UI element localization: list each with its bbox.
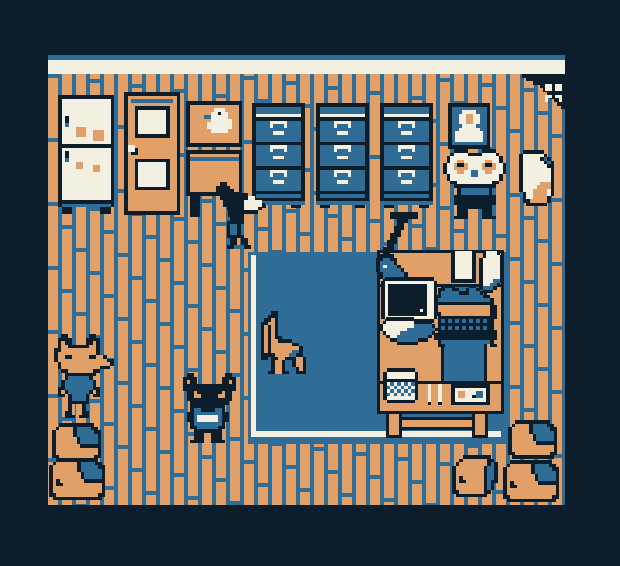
floor-seam: [384, 498, 394, 502]
floor-seam: [356, 452, 366, 456]
fridge-px: [62, 211, 73, 215]
floor-seam: [286, 81, 296, 85]
floor-seam: [342, 237, 352, 241]
floor-seam: [552, 390, 562, 394]
portrait-px: [448, 145, 490, 149]
moth-px: [545, 98, 549, 102]
sniffing-cat-character-px: [244, 245, 251, 249]
floor-seam: [216, 94, 226, 98]
chair-px: [268, 371, 275, 375]
floor-seam: [160, 386, 170, 390]
rabbit-character-px: [454, 216, 468, 220]
floor-seam: [48, 138, 58, 142]
floor-seam: [216, 478, 226, 482]
box-small-right-px: [456, 494, 488, 498]
floor-seam: [160, 322, 170, 326]
floor-seam: [188, 496, 198, 500]
fox-character[interactable]: [54, 334, 114, 418]
floor-gap: [562, 74, 565, 505]
floor-seam: [552, 134, 562, 138]
desk-leg-right-face: [475, 414, 485, 435]
rabbit-character-px: [482, 216, 496, 220]
file-cabinet-3[interactable]: [380, 103, 433, 208]
floor-seam: [188, 304, 198, 308]
fox-character-px: [93, 394, 100, 398]
rabbit-character[interactable]: [443, 149, 506, 219]
floor-seam: [510, 385, 520, 389]
floor-seam: [160, 450, 170, 454]
floor-seam: [524, 216, 534, 220]
floor-seam: [426, 503, 436, 505]
floor-seam: [496, 106, 506, 110]
floor-seam: [454, 229, 464, 233]
mug-px: [387, 400, 415, 404]
floor-seam: [258, 483, 268, 487]
floor-seam: [146, 491, 156, 495]
floor-seam: [286, 465, 296, 469]
floor-seam: [244, 460, 254, 464]
black-cat-character-px: [211, 440, 225, 444]
cassette-px: [451, 402, 490, 406]
chair-px: [261, 357, 268, 361]
floor-seam: [132, 468, 142, 472]
fridge-px: [100, 211, 111, 215]
floor-seam: [132, 276, 142, 280]
floor-seam: [118, 381, 128, 385]
floor-seam: [328, 214, 338, 218]
floor-seam: [48, 74, 58, 78]
box-stack-left-top[interactable]: [52, 423, 105, 462]
typewriter[interactable]: [434, 284, 501, 347]
floor-seam: [412, 96, 422, 100]
chair[interactable]: [257, 311, 310, 374]
floor-seam: [300, 232, 310, 236]
floor-seam: [328, 470, 338, 474]
pencils-px: [428, 402, 432, 406]
floor-seam: [538, 367, 548, 371]
floor-seam: [300, 488, 310, 492]
pencils: [424, 384, 445, 405]
papers-px: [500, 279, 504, 283]
box-stack-right-top[interactable]: [508, 420, 561, 459]
floor-seam: [118, 445, 128, 449]
floor-seam: [62, 289, 72, 293]
paper-bag-px: [547, 199, 551, 203]
fridge[interactable]: [58, 95, 114, 214]
desk-leg-left-face: [389, 414, 399, 435]
floor-seam: [552, 326, 562, 330]
floor-seam: [104, 422, 114, 426]
moth-px: [559, 98, 563, 102]
floor-seam: [510, 129, 520, 133]
floor-seam: [76, 248, 86, 252]
floor-seam: [132, 404, 142, 408]
game-stage[interactable]: [0, 0, 620, 566]
pencils-px: [438, 402, 442, 406]
floor-seam: [552, 262, 562, 266]
sniffing-cat-character-px: [258, 207, 262, 211]
file-cabinet-2-px: [320, 205, 331, 209]
floor-seam: [244, 76, 254, 80]
box-small-right[interactable]: [452, 455, 501, 497]
sniffing-cat-character[interactable]: [216, 182, 265, 249]
floor-seam: [118, 253, 128, 257]
desk-leg-right: [472, 411, 488, 438]
floor-seam: [538, 239, 548, 243]
sniffing-cat-character-px: [227, 245, 234, 249]
floor-seam: [538, 303, 548, 307]
wall-trim: [48, 60, 565, 74]
floor-seam: [468, 444, 478, 448]
floor-seam: [230, 309, 240, 313]
desk-lamp[interactable]: [376, 212, 425, 286]
box-stack-left-bottom[interactable]: [49, 458, 109, 500]
floor-seam: [314, 447, 324, 451]
floor-seam: [62, 225, 72, 229]
floor-seam: [524, 280, 534, 284]
floor-seam: [146, 427, 156, 431]
floor-seam: [104, 230, 114, 234]
floor-seam: [132, 84, 142, 88]
cassette: [451, 384, 490, 405]
rug-border-left: [251, 255, 256, 432]
paper-bag-px: [551, 192, 555, 196]
file-cabinet-3-px: [419, 205, 430, 209]
fox-character-px: [110, 362, 114, 366]
typewriter-px: [490, 344, 497, 348]
fox-character-px: [79, 415, 90, 419]
desk-footbar-face: [401, 420, 473, 427]
rug-border-bottom: [251, 431, 501, 437]
floor-seam: [76, 504, 86, 505]
desk-footbar: [398, 417, 476, 430]
floor-seam: [370, 475, 380, 479]
floor-seam: [440, 462, 450, 466]
paper-bag[interactable]: [519, 150, 558, 206]
floor-seam: [160, 258, 170, 262]
side-table-px: [190, 213, 201, 217]
door[interactable]: [124, 92, 180, 215]
corner-shadow-px: [561, 106, 568, 110]
floor-seam: [524, 344, 534, 348]
box-small-right-px: [491, 487, 495, 491]
floor-seam: [118, 317, 128, 321]
floor-seam: [76, 312, 86, 316]
box-stack-left-bottom-px: [53, 497, 102, 501]
floor-seam: [202, 455, 212, 459]
floor-seam: [188, 368, 198, 372]
floor-seam: [538, 111, 548, 115]
chair-px: [275, 371, 282, 375]
rabbit-character-px: [503, 170, 507, 174]
floor-seam: [370, 155, 380, 159]
file-cabinet-3-px: [384, 205, 395, 209]
floor-seam: [202, 263, 212, 267]
floor-seam: [174, 217, 184, 221]
floor-seam: [146, 363, 156, 367]
floor-seam: [146, 235, 156, 239]
mug-px: [415, 396, 419, 400]
file-cabinet-1-px: [291, 205, 302, 209]
fox-character-px: [100, 366, 111, 370]
floor-seam: [146, 299, 156, 303]
floor-seam: [286, 209, 296, 213]
typewriter-px: [441, 340, 490, 344]
portrait: [448, 103, 490, 149]
floor-seam: [370, 91, 380, 95]
black-cat-character-px: [190, 440, 204, 444]
black-cat-character[interactable]: [183, 373, 239, 443]
floor-seam: [188, 240, 198, 244]
open-book-px: [390, 338, 397, 342]
floor-seam: [202, 327, 212, 331]
floor-seam: [174, 281, 184, 285]
floor-seam: [90, 271, 100, 275]
floor-gap: [114, 74, 118, 505]
chair-px: [282, 371, 289, 375]
mug: [383, 368, 422, 403]
desk-leg-left: [386, 411, 402, 438]
floor-seam: [90, 79, 100, 83]
floor-seam: [230, 501, 240, 505]
goose-picture-px: [186, 143, 242, 147]
open-book-px: [428, 335, 432, 339]
floor-seam: [104, 294, 114, 298]
fox-character-px: [58, 394, 65, 398]
paper-bag-px: [526, 203, 547, 207]
sniffing-cat-character-px: [262, 203, 266, 207]
floor-seam: [132, 340, 142, 344]
fox-character-px: [65, 415, 76, 419]
rabbit-character-px: [499, 177, 503, 181]
floor-seam: [412, 480, 422, 484]
box-stack-right-bottom-px: [507, 499, 556, 503]
goose-picture: [186, 101, 242, 147]
floor-seam: [328, 86, 338, 90]
box-stack-right-top-px: [512, 455, 554, 459]
file-cabinet-2[interactable]: [316, 103, 369, 208]
floor-seam: [440, 78, 450, 82]
floor-seam: [48, 266, 58, 270]
floor-seam: [216, 286, 226, 290]
chair-px: [296, 371, 307, 375]
floor-seam: [510, 257, 520, 261]
floor-seam: [398, 457, 408, 461]
floor-seam: [174, 345, 184, 349]
floor-seam: [510, 321, 520, 325]
open-book-px: [397, 342, 418, 346]
papers-px: [451, 279, 476, 283]
floor-seam: [342, 493, 352, 497]
floor-seam: [48, 202, 58, 206]
floor-seam: [482, 83, 492, 87]
box-stack-right-bottom[interactable]: [503, 460, 563, 502]
floor-seam: [524, 408, 534, 412]
open-book-px: [418, 338, 429, 342]
floor-seam: [496, 234, 506, 238]
floor-seam: [174, 473, 184, 477]
file-cabinet-2-px: [355, 205, 366, 209]
typewriter-px: [438, 344, 445, 348]
fridge-px: [111, 204, 115, 208]
door-px: [124, 211, 180, 215]
floor-seam: [216, 350, 226, 354]
moth[interactable]: [541, 84, 566, 102]
